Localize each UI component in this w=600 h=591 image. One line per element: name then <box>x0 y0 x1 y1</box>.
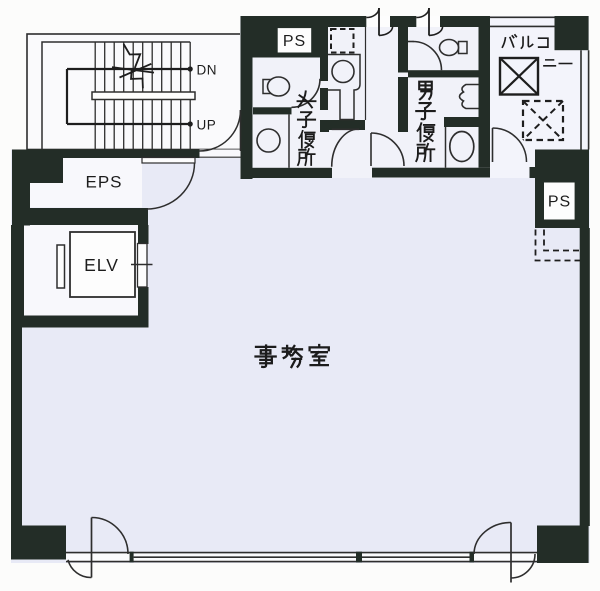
svg-text:PS: PS <box>283 33 306 50</box>
svg-text:UP: UP <box>197 118 217 133</box>
svg-text:PS: PS <box>548 194 571 211</box>
svg-text:DN: DN <box>197 63 218 78</box>
svg-text:EPS: EPS <box>85 173 122 192</box>
svg-text:ELV: ELV <box>84 255 119 275</box>
